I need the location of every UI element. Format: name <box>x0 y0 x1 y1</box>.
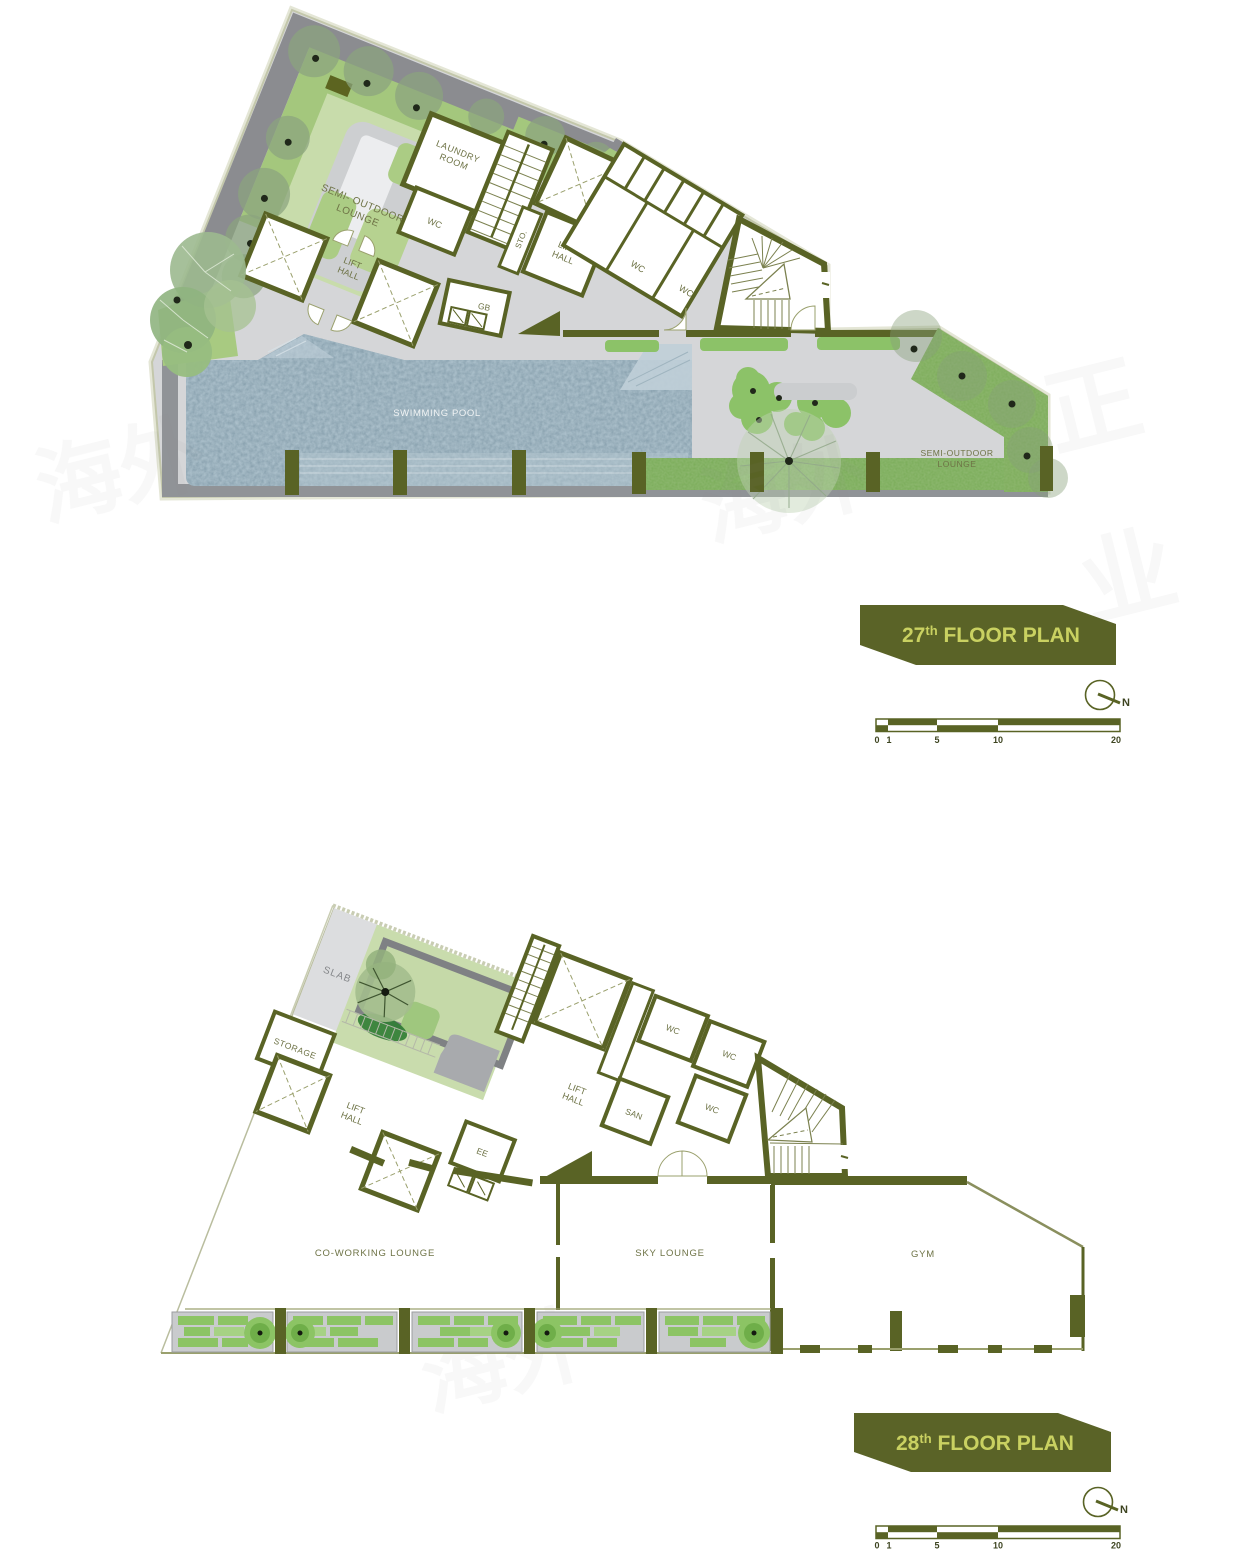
svg-text:20: 20 <box>1111 735 1121 745</box>
svg-text:CO-WORKING LOUNGE: CO-WORKING LOUNGE <box>315 1248 435 1259</box>
svg-text:SEMI-OUTDOOR: SEMI-OUTDOOR <box>920 448 993 458</box>
svg-text:10: 10 <box>993 735 1003 745</box>
svg-text:GYM: GYM <box>911 1249 935 1260</box>
svg-text:10: 10 <box>993 1541 1003 1549</box>
svg-text:5: 5 <box>934 735 939 745</box>
svg-text:1: 1 <box>886 1541 891 1549</box>
svg-text:0: 0 <box>874 1541 879 1549</box>
svg-text:20: 20 <box>1111 1541 1121 1549</box>
svg-text:1: 1 <box>886 735 891 745</box>
svg-text:海外: 海外 <box>27 405 215 538</box>
svg-text:N: N <box>1120 1504 1128 1516</box>
svg-text:5: 5 <box>934 1541 939 1549</box>
svg-text:N: N <box>1122 697 1130 709</box>
svg-text:SWIMMING POOL: SWIMMING POOL <box>393 408 481 419</box>
svg-text:SKY LOUNGE: SKY LOUNGE <box>635 1248 705 1259</box>
svg-text:0: 0 <box>874 735 879 745</box>
svg-text:LOUNGE: LOUNGE <box>938 459 977 469</box>
